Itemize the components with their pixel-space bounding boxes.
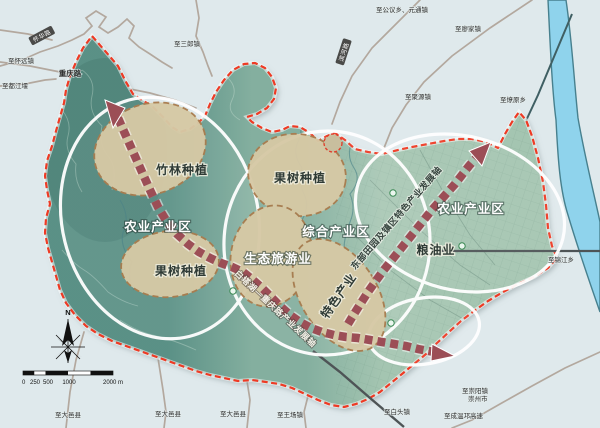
scale-max-label: 2000 m (103, 380, 123, 386)
town-center-area (324, 134, 342, 152)
zone-label-comprehensive: 综合产业区 (302, 224, 370, 239)
connection-label: 至白头镇 (384, 407, 411, 416)
site-marker (230, 288, 236, 294)
connection-label: 至公议乡、元通镇 (376, 5, 429, 14)
scale-tick: 250 (30, 380, 41, 386)
site-marker (388, 320, 394, 326)
map-canvas: 农业产业区 综合产业区 农业产业区 生态旅游业 竹林种植 果树种植 果树种植 粮… (0, 0, 600, 428)
plot-label-fruit-west: 果树种植 (154, 263, 207, 278)
connection-label: 至大邑县 (220, 409, 247, 418)
zone-label-west-agriculture: 农业产业区 (123, 219, 192, 234)
connection-label: 至成温邛高速 (444, 411, 484, 420)
connection-label: 至怀远镇 (8, 56, 35, 65)
plot-label-fruit-center: 果树种植 (273, 170, 326, 185)
site-marker (390, 190, 396, 196)
connection-label: 至廖家镇 (455, 24, 482, 33)
plot-label-bamboo: 竹林种植 (155, 162, 208, 177)
connection-label: 至大邑县 (55, 410, 82, 419)
zone-label-ecotourism: 生态旅游业 (244, 251, 312, 266)
connection-label: 至崇阳镇 (462, 386, 489, 395)
connection-label: 崇州市 (468, 394, 488, 403)
planning-map: 农业产业区 综合产业区 农业产业区 生态旅游业 竹林种植 果树种植 果树种植 粮… (0, 0, 600, 428)
connection-label: 至三郎镇 (174, 39, 201, 48)
compass-north-label: N (65, 308, 70, 317)
connection-label: 至都江堰 (2, 81, 29, 90)
connection-label: 至燎原乡 (500, 95, 526, 104)
scale-tick: 1000 (62, 380, 76, 386)
connection-label: 至王场镇 (277, 410, 304, 419)
plot-label-grain-oil: 粮油业 (416, 242, 455, 257)
connection-label: 至锦江乡 (548, 255, 574, 264)
connection-label: 至大邑县 (155, 409, 182, 418)
connection-label: 至聚源镇 (405, 92, 432, 101)
zone-label-east-agriculture: 农业产业区 (436, 201, 505, 216)
site-marker (459, 243, 465, 249)
scale-tick: 500 (43, 380, 54, 386)
road-label-chongqing: 重庆路 (59, 68, 82, 78)
